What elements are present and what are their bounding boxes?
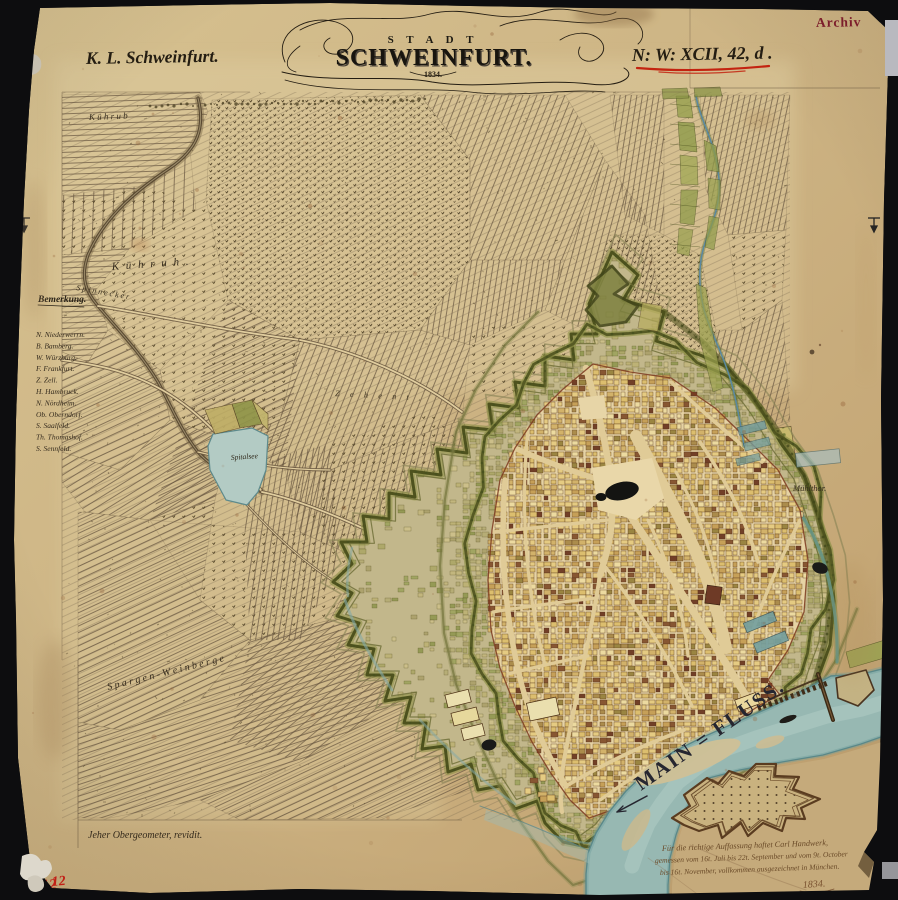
svg-text:Jeher Obergeometer, revidit.: Jeher Obergeometer, revidit. (88, 830, 202, 841)
svg-text:S. Saalfeld.: S. Saalfeld. (36, 421, 70, 430)
svg-text:B. Bamberg.: B. Bamberg. (36, 341, 74, 350)
svg-text:1834.: 1834. (802, 878, 825, 891)
svg-text:K ü h r u b: K ü h r u b (88, 111, 129, 122)
svg-text:Z. Zell.: Z. Zell. (36, 376, 58, 385)
svg-text:1834.: 1834. (424, 70, 442, 79)
svg-text:Th. Thomashof.: Th. Thomashof. (36, 433, 83, 442)
svg-text:N: W: XCII, 42, d .: N: W: XCII, 42, d . (631, 43, 773, 65)
svg-text:Ob. Oberndorf.: Ob. Oberndorf. (36, 410, 83, 419)
svg-text:12: 12 (51, 874, 66, 890)
svg-text:H. Hambruck.: H. Hambruck. (35, 387, 79, 396)
svg-text:W. Würzburg.: W. Würzburg. (36, 353, 77, 362)
svg-text:F. Frankfurt.: F. Frankfurt. (35, 364, 75, 373)
svg-text:K. L. Schweinfurt.: K. L. Schweinfurt. (85, 46, 219, 68)
svg-text:N. Niederwerrn.: N. Niederwerrn. (35, 330, 85, 339)
svg-text:S. Sennfeld.: S. Sennfeld. (36, 444, 71, 453)
svg-text:Archiv: Archiv (816, 14, 862, 30)
svg-text:Bemerkung.: Bemerkung. (37, 295, 86, 305)
svg-text:SCHWEINFURT.: SCHWEINFURT. (336, 45, 533, 71)
svg-text:N. Nördheim.: N. Nördheim. (35, 398, 76, 407)
svg-text:Mühlthor.: Mühlthor. (792, 483, 826, 493)
